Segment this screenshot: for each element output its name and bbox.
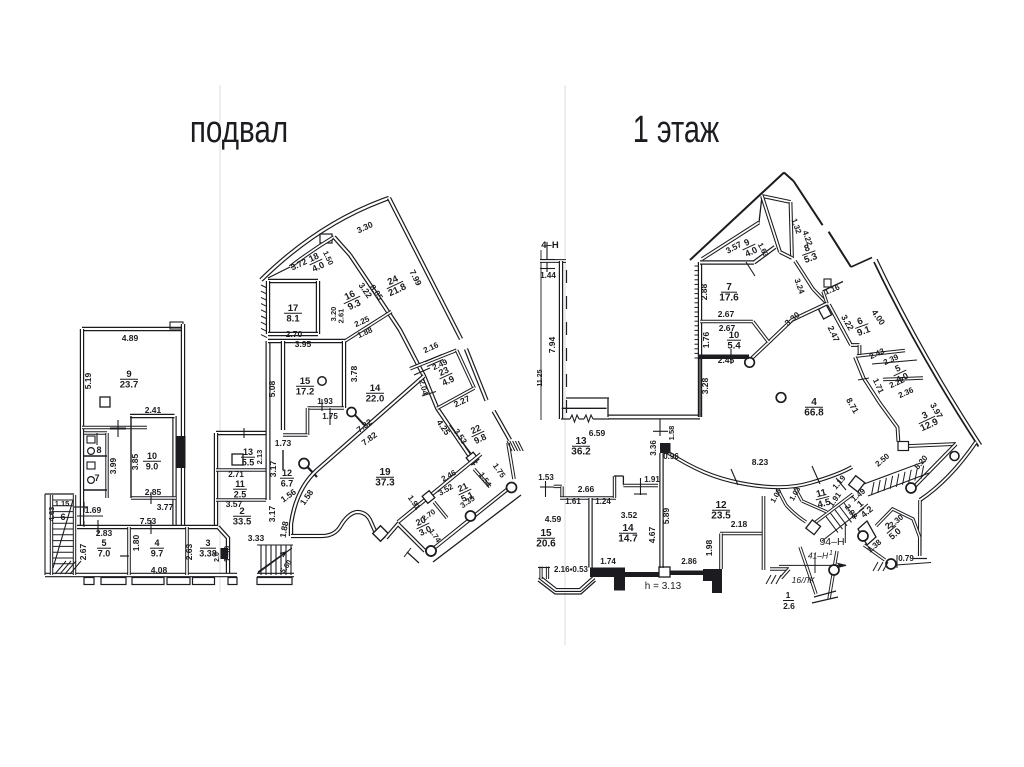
svg-text:2.66: 2.66 [578,484,595,494]
svg-text:4.67: 4.67 [647,526,657,543]
svg-text:66.8: 66.8 [804,408,824,419]
svg-text:1.98: 1.98 [704,539,714,556]
svg-text:14: 14 [370,383,381,394]
svg-text:13: 13 [575,436,587,447]
svg-text:3.95: 3.95 [295,339,312,349]
svg-text:7.53: 7.53 [140,516,157,526]
svg-text:4: 4 [154,538,159,548]
svg-text:15: 15 [300,376,311,387]
svg-text:1.61: 1.61 [565,497,581,506]
svg-text:3: 3 [205,538,210,548]
svg-text:1.75: 1.75 [322,412,338,421]
svg-text:3.77: 3.77 [157,502,174,512]
svg-text:2.88: 2.88 [699,283,709,300]
svg-text:11.25: 11.25 [537,369,544,386]
svg-text:4.59: 4.59 [545,514,562,524]
svg-text:22.0: 22.0 [366,394,385,405]
svg-text:8.23: 8.23 [752,457,769,467]
svg-text:2.67: 2.67 [718,309,735,319]
svg-text:15: 15 [540,528,552,539]
svg-text:8: 8 [96,445,101,455]
svg-text:2.67: 2.67 [719,323,736,333]
svg-text:17: 17 [288,303,299,314]
svg-text:2.85: 2.85 [145,487,162,497]
svg-text:33.5: 33.5 [233,517,252,528]
svg-text:1.74: 1.74 [600,557,616,566]
svg-text:3.17: 3.17 [267,505,277,522]
svg-text:4.89: 4.89 [122,333,139,343]
svg-text:3.85: 3.85 [130,453,140,470]
svg-text:9.0: 9.0 [146,462,159,472]
svg-text:4–H: 4–H [541,240,559,251]
svg-text:2.16▪0.53: 2.16▪0.53 [554,565,589,574]
svg-text:12: 12 [715,500,727,511]
svg-text:1.15: 1.15 [55,499,70,508]
svg-text:1.24: 1.24 [595,497,611,506]
svg-text:20.6: 20.6 [536,539,556,550]
svg-text:16/ЛК: 16/ЛК [792,575,816,585]
svg-text:подвал: подвал [190,109,288,151]
svg-text:7: 7 [94,473,99,483]
svg-text:2.6: 2.6 [783,601,795,611]
svg-text:2.86: 2.86 [681,557,697,566]
svg-text:1.93: 1.93 [317,397,333,406]
svg-text:2.83: 2.83 [96,528,113,538]
svg-text:11: 11 [235,479,245,489]
svg-text:4: 4 [811,397,817,408]
svg-text:2.13: 2.13 [255,450,264,465]
svg-text:17.6: 17.6 [719,293,739,304]
svg-text:3.57: 3.57 [226,499,243,509]
svg-text:13: 13 [243,447,253,457]
svg-text:23.5: 23.5 [711,511,731,522]
svg-text:2.0: 2.0 [214,552,221,562]
svg-text:23.7: 23.7 [120,380,139,391]
svg-text:0.79: 0.79 [898,554,914,563]
svg-text:4.63: 4.63 [47,507,56,522]
svg-text:1.73: 1.73 [275,438,292,448]
svg-text:2.61: 2.61 [337,309,346,324]
svg-text:3.17: 3.17 [268,460,278,477]
svg-text:7: 7 [726,282,732,293]
svg-text:1.53: 1.53 [538,473,554,482]
svg-text:2.71: 2.71 [228,470,244,479]
svg-text:9: 9 [126,369,131,380]
svg-text:2.63: 2.63 [184,543,194,560]
svg-text:14.7: 14.7 [618,534,638,545]
svg-text:5.89: 5.89 [661,507,671,524]
svg-text:2.70: 2.70 [286,329,303,339]
svg-text:6: 6 [60,512,65,522]
svg-text:7.94: 7.94 [547,336,557,353]
svg-text:5.08: 5.08 [267,380,277,397]
svg-text:3.78: 3.78 [349,365,359,382]
svg-text:12: 12 [282,468,292,478]
svg-text:8.1: 8.1 [286,314,300,325]
svg-text:5.19: 5.19 [83,372,93,389]
svg-text:2.41: 2.41 [145,405,162,415]
svg-text:1.76: 1.76 [701,331,711,348]
svg-text:1 этаж: 1 этаж [633,108,720,151]
svg-text:37.3: 37.3 [375,478,395,489]
svg-text:1.44: 1.44 [540,271,556,280]
svg-text:1.90: 1.90 [222,545,232,562]
svg-text:1: 1 [829,550,833,557]
svg-text:3.36: 3.36 [649,440,658,456]
svg-text:2.67: 2.67 [78,543,88,560]
svg-text:10: 10 [147,451,157,461]
svg-text:5.4: 5.4 [727,341,741,352]
svg-text:6.59: 6.59 [589,428,606,438]
svg-text:3.33: 3.33 [248,533,265,543]
svg-text:1: 1 [786,590,791,600]
svg-text:2.18: 2.18 [731,519,748,529]
svg-text:41–H: 41–H [808,551,829,561]
svg-text:36.2: 36.2 [571,447,591,458]
svg-text:3.99: 3.99 [108,457,118,474]
svg-text:2.5: 2.5 [234,490,247,500]
svg-text:1.58: 1.58 [667,426,676,441]
svg-text:h = 3.13: h = 3.13 [645,581,682,592]
svg-text:4.08: 4.08 [151,565,168,575]
svg-text:14: 14 [622,523,634,534]
svg-text:7.0: 7.0 [98,549,111,559]
svg-text:5: 5 [101,538,106,548]
svg-text:9.7: 9.7 [151,549,164,559]
svg-text:1.80: 1.80 [131,534,141,551]
svg-text:17.2: 17.2 [296,387,315,398]
svg-text:94–H: 94–H [819,536,844,548]
svg-text:3.28: 3.28 [700,377,710,394]
svg-text:1.91: 1.91 [644,475,660,484]
svg-text:2.45: 2.45 [718,355,735,365]
svg-text:0.96: 0.96 [663,452,679,461]
svg-text:5.5: 5.5 [242,458,255,468]
svg-text:3.52: 3.52 [621,510,638,520]
svg-text:19: 19 [379,467,391,478]
svg-text:1.69: 1.69 [85,505,102,515]
